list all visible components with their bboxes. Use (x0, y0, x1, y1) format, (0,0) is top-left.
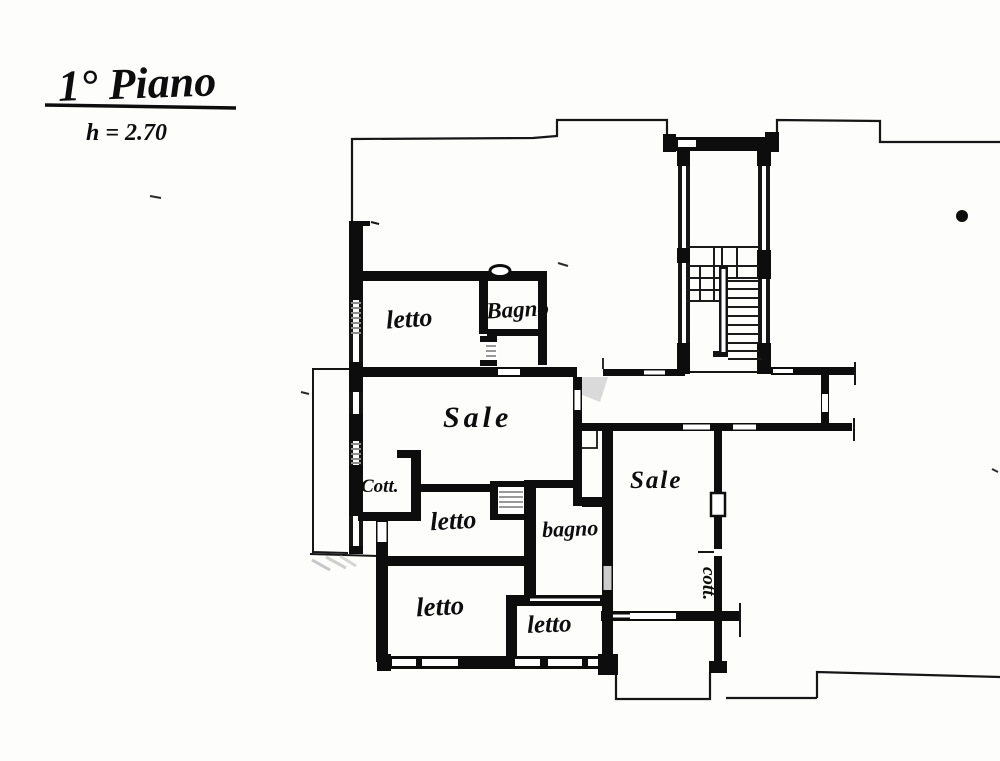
svg-text:Sale: Sale (630, 467, 682, 494)
svg-text:Sale: Sale (443, 401, 512, 434)
svg-text:letto: letto (429, 505, 477, 536)
svg-text:letto: letto (415, 590, 465, 622)
svg-text:letto: letto (385, 302, 433, 334)
svg-text:cott.: cott. (698, 567, 719, 600)
svg-text:Cott.: Cott. (361, 476, 398, 497)
svg-text:Bagno: Bagno (485, 295, 550, 323)
svg-text:bagno: bagno (542, 515, 599, 542)
svg-text:1° Piano: 1° Piano (57, 56, 217, 110)
svg-text:letto: letto (527, 610, 572, 639)
svg-text:h = 2.70: h = 2.70 (86, 120, 167, 146)
